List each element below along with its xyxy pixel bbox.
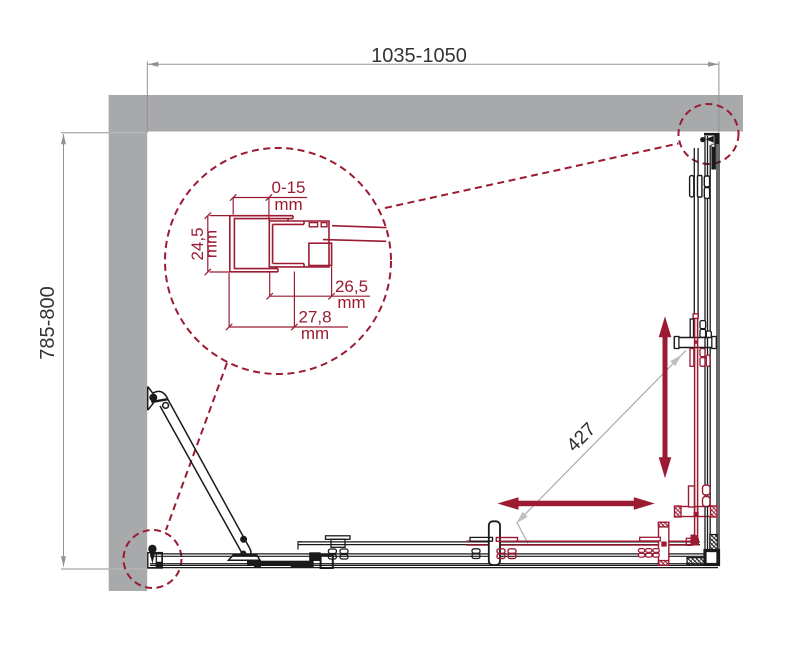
svg-text:mm: mm: [301, 324, 329, 343]
svg-text:1035-1050: 1035-1050: [371, 45, 467, 67]
svg-text:785-800: 785-800: [37, 286, 59, 359]
svg-text:mm: mm: [202, 230, 221, 258]
svg-text:mm: mm: [274, 195, 302, 214]
svg-text:mm: mm: [337, 293, 365, 312]
